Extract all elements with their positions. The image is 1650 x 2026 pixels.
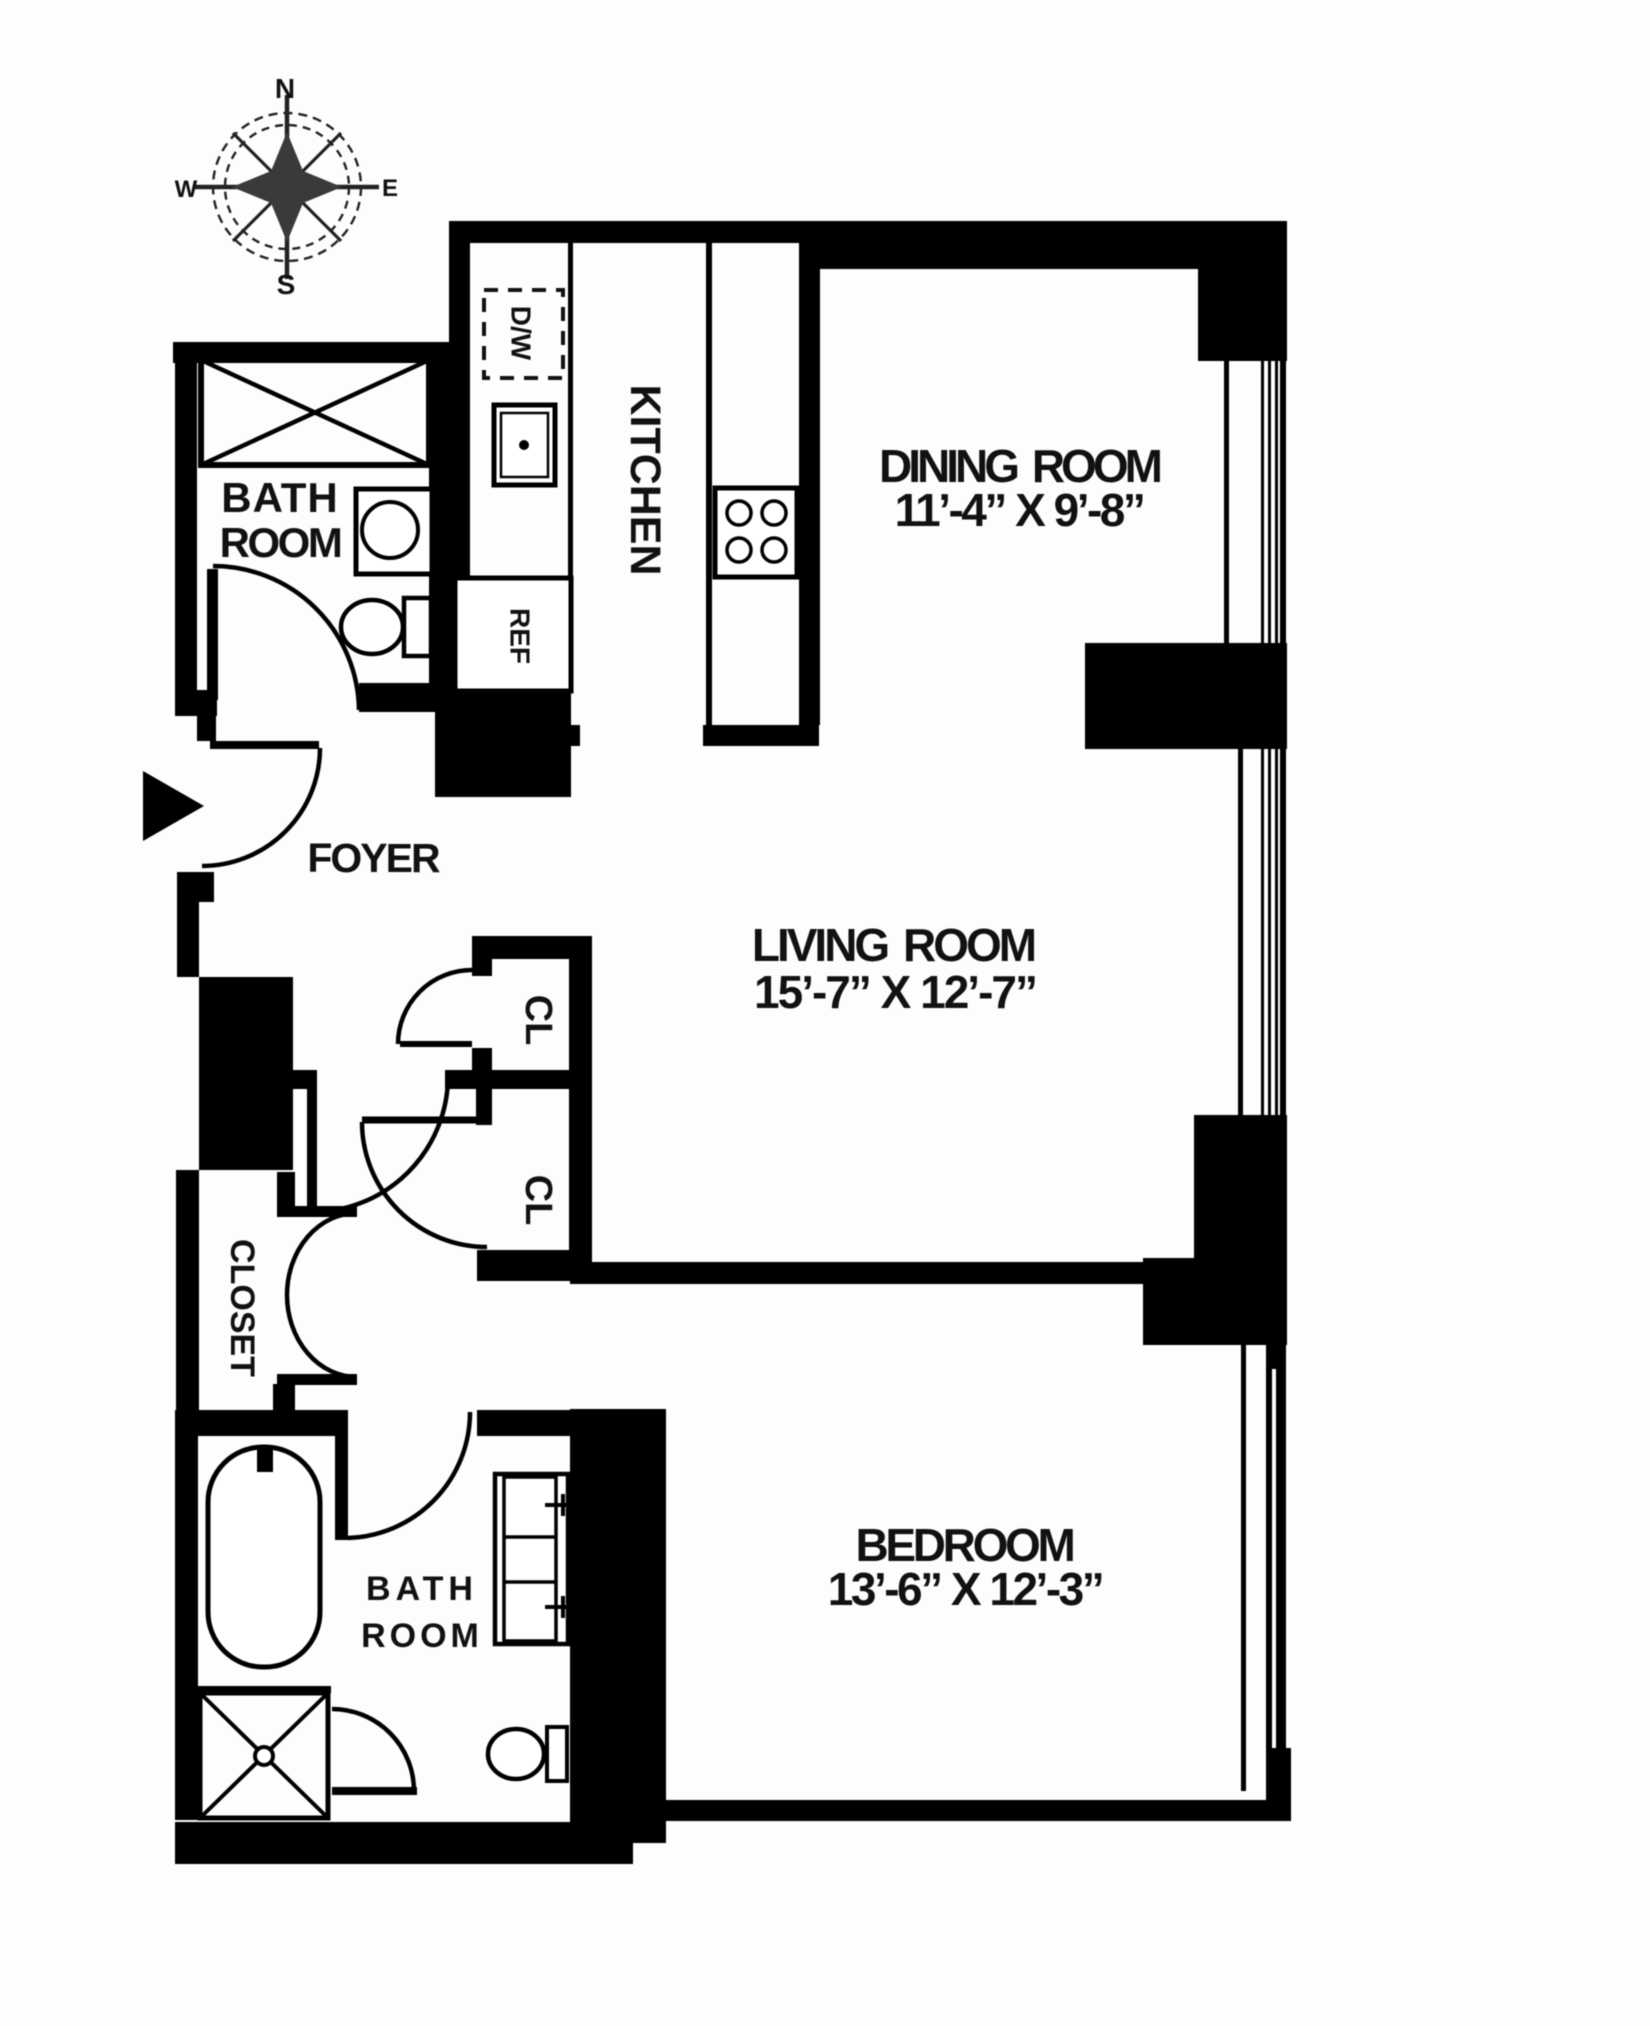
svg-text:E: E [382, 175, 398, 202]
svg-text:11’-4” X 9’-8”: 11’-4” X 9’-8” [895, 484, 1144, 536]
svg-text:BATH: BATH [221, 474, 339, 521]
svg-text:REF: REF [505, 608, 536, 664]
svg-text:N: N [275, 73, 295, 104]
svg-text:W: W [175, 176, 198, 203]
svg-text:KITCHEN: KITCHEN [621, 384, 669, 575]
svg-text:CL: CL [517, 1175, 559, 1226]
svg-text:CL: CL [517, 995, 559, 1046]
svg-text:ROOM: ROOM [220, 519, 341, 566]
svg-text:13’-6” X 12’-3”: 13’-6” X 12’-3” [828, 1563, 1102, 1615]
svg-text:ROOM: ROOM [361, 1617, 483, 1655]
svg-text:FOYER: FOYER [307, 835, 440, 881]
svg-text:LIVING ROOM: LIVING ROOM [752, 919, 1035, 971]
svg-text:D/W: D/W [506, 306, 537, 361]
svg-text:BATH: BATH [366, 1570, 478, 1608]
svg-text:CLOSET: CLOSET [223, 1239, 261, 1377]
svg-text:15’-7” X 12’-7”: 15’-7” X 12’-7” [754, 966, 1036, 1018]
svg-text:S: S [277, 269, 296, 300]
